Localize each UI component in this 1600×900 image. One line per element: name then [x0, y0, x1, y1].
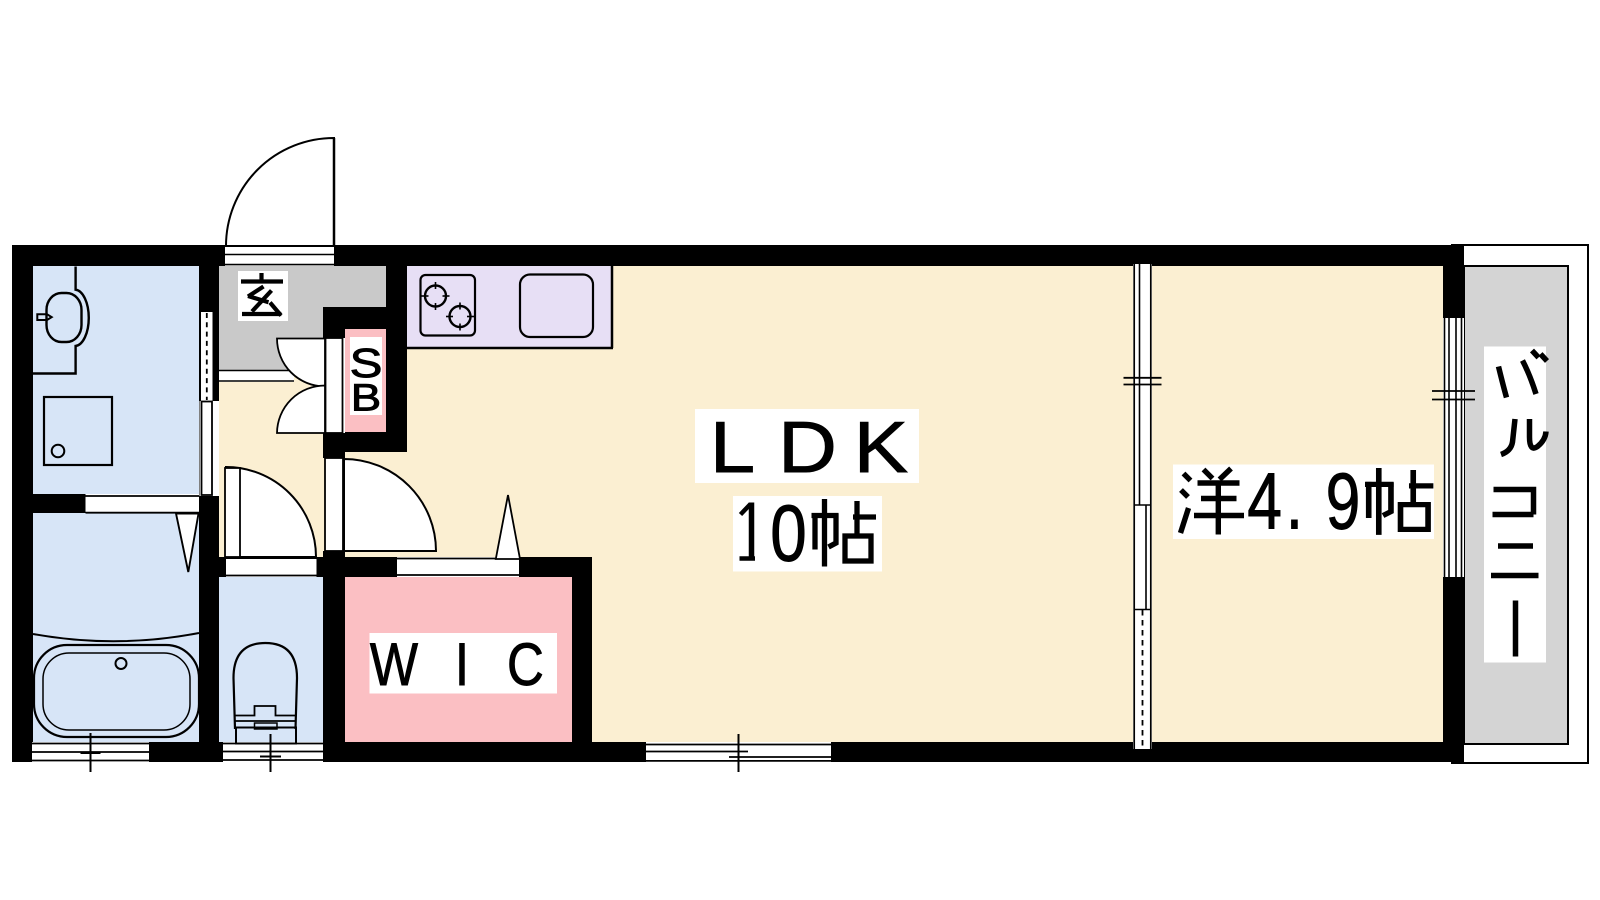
svg-text:B: B: [351, 376, 381, 419]
svg-text:L: L: [710, 407, 755, 488]
svg-text:K: K: [854, 407, 908, 488]
svg-text:W: W: [370, 631, 419, 698]
svg-text:.: .: [1286, 457, 1303, 546]
svg-text:C: C: [507, 631, 544, 698]
svg-text:4: 4: [1247, 457, 1282, 546]
svg-text:D: D: [778, 407, 837, 488]
svg-text:9: 9: [1326, 457, 1361, 546]
svg-text:I: I: [455, 631, 469, 698]
svg-text:0: 0: [770, 488, 806, 578]
